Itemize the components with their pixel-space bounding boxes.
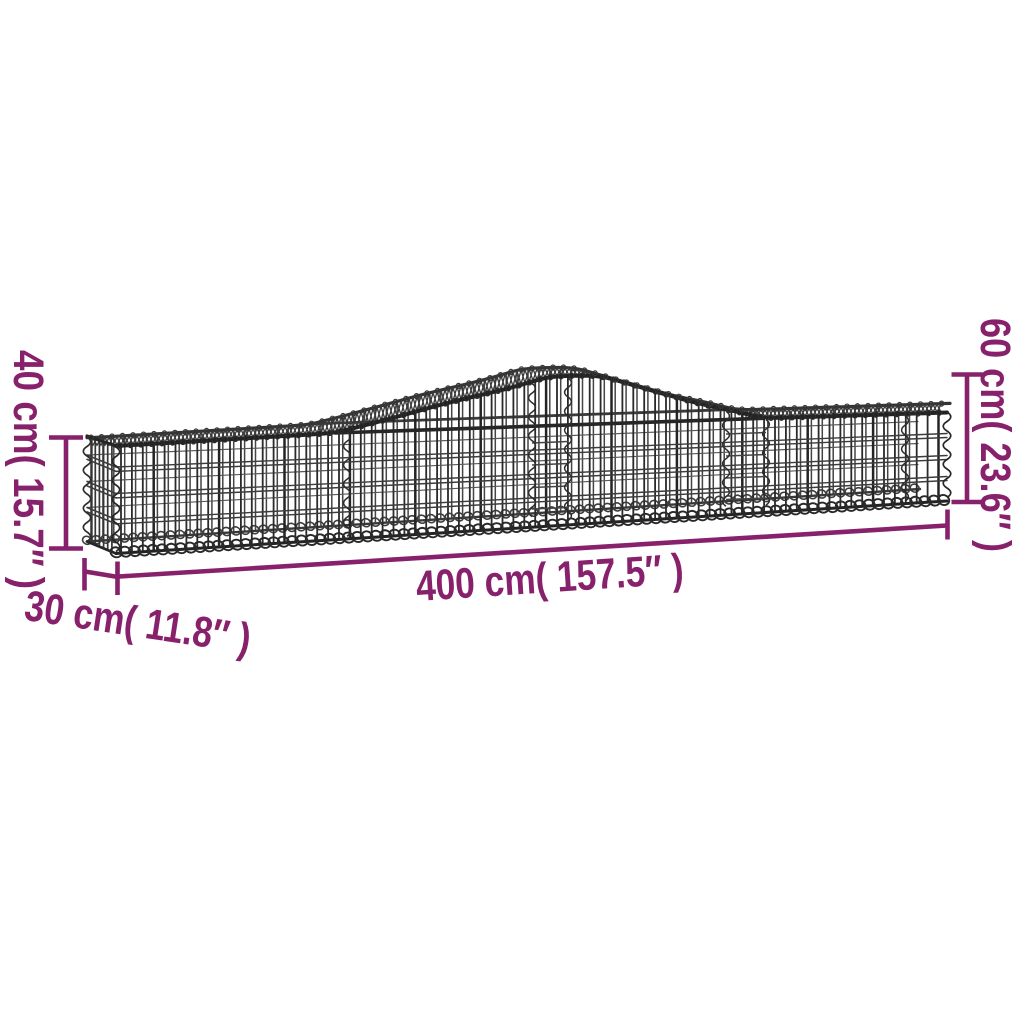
svg-text:30 cm( 11.8″ ): 30 cm( 11.8″ ) — [22, 582, 255, 664]
svg-text:60 cm( 23.6″ ): 60 cm( 23.6″ ) — [971, 318, 1019, 552]
svg-text:40 cm( 15.7″ ): 40 cm( 15.7″ ) — [4, 350, 52, 589]
